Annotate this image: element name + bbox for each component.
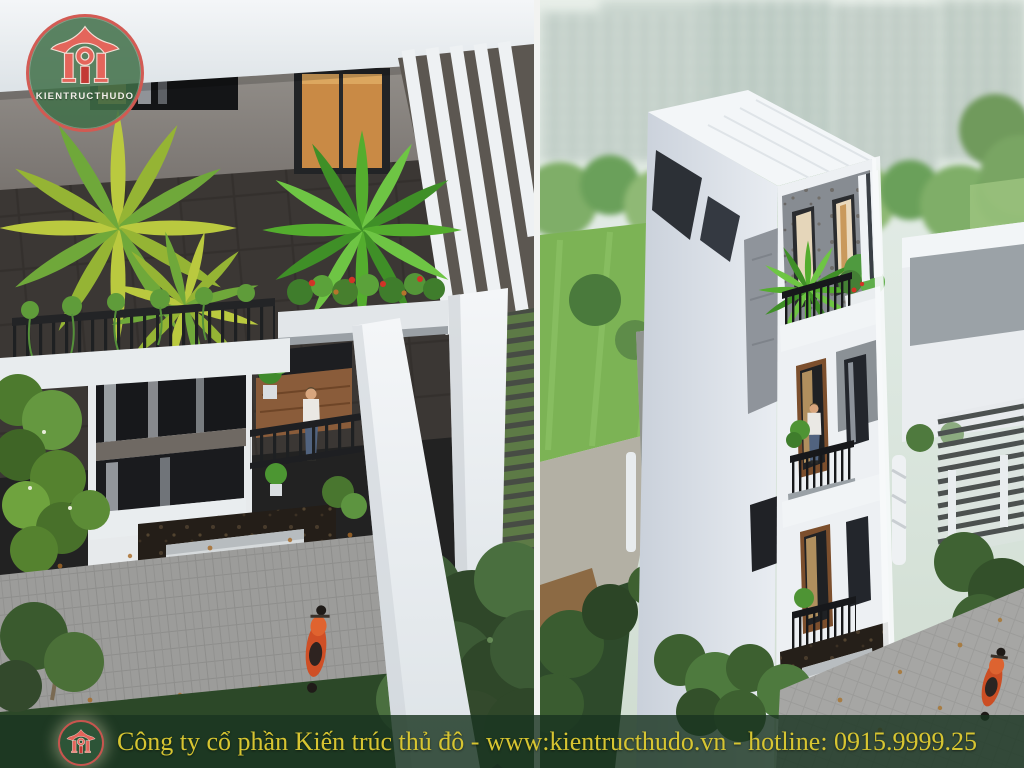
right-scene [540, 0, 1024, 768]
company-name-text: Công ty cổ phần Kiến trúc thủ đô [117, 727, 464, 756]
footer-banner: Công ty cổ phần Kiến trúc thủ đô - www:k… [0, 715, 1024, 768]
render-collage: KIENTRUCTHUDO Công ty cổ phần Kiến trúc … [0, 0, 1024, 768]
neighbor-flat-roof [910, 244, 1024, 346]
plant-pot [263, 385, 277, 399]
watermark-logo: KIENTRUCTHUDO [26, 14, 144, 132]
right-panel-render [540, 0, 1024, 768]
hotline-label: hotline: [748, 727, 834, 756]
separator-1: - [464, 727, 486, 756]
website-text: www:kientructhudo.vn [486, 727, 726, 756]
marble-accent [744, 228, 780, 414]
window-2f [844, 354, 869, 447]
window-1f [846, 516, 871, 607]
separator-2: - [726, 727, 748, 756]
neighbor-pergola [938, 398, 1024, 557]
logo-pagoda-icon [49, 23, 121, 95]
lamp-post [626, 452, 636, 552]
hotline-phone-text: 0915.9999.25 [834, 727, 977, 756]
banner-text: Công ty cổ phần Kiến trúc thủ đô - www:k… [0, 727, 1024, 757]
logo-brand-text: KIENTRUCTHUDO [36, 91, 134, 102]
